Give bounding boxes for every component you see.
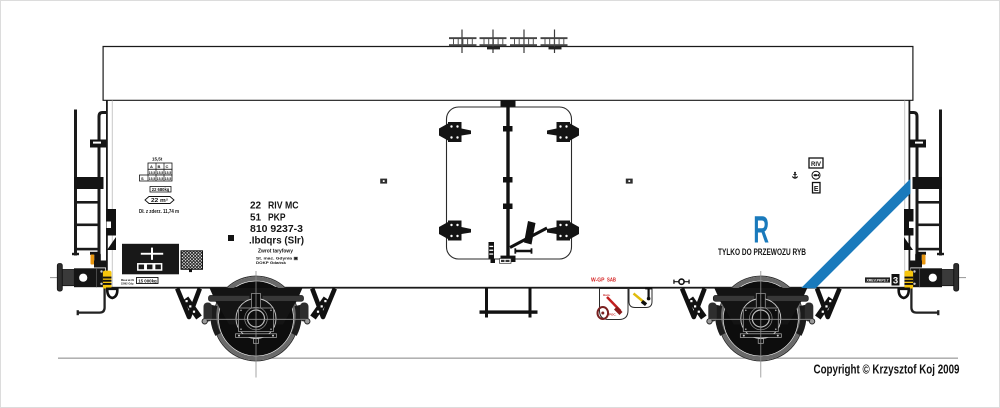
svg-text:Copyright © Krzysztof Koj 2009: Copyright © Krzysztof Koj 2009 — [814, 363, 960, 377]
svg-text:SAB: SAB — [607, 277, 616, 283]
svg-text:15,5: 15,5 — [165, 171, 172, 175]
svg-text:A: A — [150, 164, 153, 169]
svg-text:R: R — [753, 208, 769, 251]
svg-text:PKP: PKP — [268, 212, 286, 223]
svg-text:C: C — [166, 164, 169, 169]
svg-text:RIV MC: RIV MC — [268, 201, 299, 212]
svg-text:15,5t: 15,5t — [152, 157, 163, 162]
svg-text:22/92 Gdy.: 22/92 Gdy. — [121, 282, 134, 286]
svg-text:15,5: 15,5 — [149, 171, 156, 175]
svg-text:W-GP: W-GP — [591, 277, 605, 283]
svg-text:15,5: 15,5 — [149, 177, 156, 181]
svg-text:Dł. z zderz. 11,74 m: Dł. z zderz. 11,74 m — [139, 209, 179, 215]
svg-text:51: 51 — [250, 212, 262, 223]
svg-text:810 9237-3: 810 9237-3 — [250, 224, 303, 235]
svg-text:15,5: 15,5 — [165, 177, 172, 181]
svg-text:15 000kg: 15 000kg — [138, 279, 157, 284]
svg-text:POC.: POC. — [609, 313, 617, 317]
svg-text:E: E — [814, 186, 819, 193]
svg-text:22: 22 — [250, 201, 262, 212]
svg-text:S: S — [141, 176, 144, 181]
svg-text:15,5: 15,5 — [157, 171, 164, 175]
svg-text:Ham.: Ham. — [603, 293, 611, 297]
svg-text:22 680kg: 22 680kg — [152, 187, 170, 192]
svg-text:22 m²: 22 m² — [151, 198, 168, 204]
svg-text:Zwrot taryfowy: Zwrot taryfowy — [258, 249, 293, 255]
svg-text:XREV.PKP3.7: XREV.PKP3.7 — [867, 279, 889, 283]
svg-text:3: 3 — [893, 276, 898, 287]
svg-text:B: B — [158, 164, 161, 169]
svg-text:.Ibdqrs (Slr): .Ibdqrs (Slr) — [249, 236, 304, 247]
svg-text:DOKP Gdańsk: DOKP Gdańsk — [256, 260, 287, 265]
svg-text:RIV: RIV — [811, 161, 822, 168]
svg-text:15,5: 15,5 — [157, 177, 164, 181]
